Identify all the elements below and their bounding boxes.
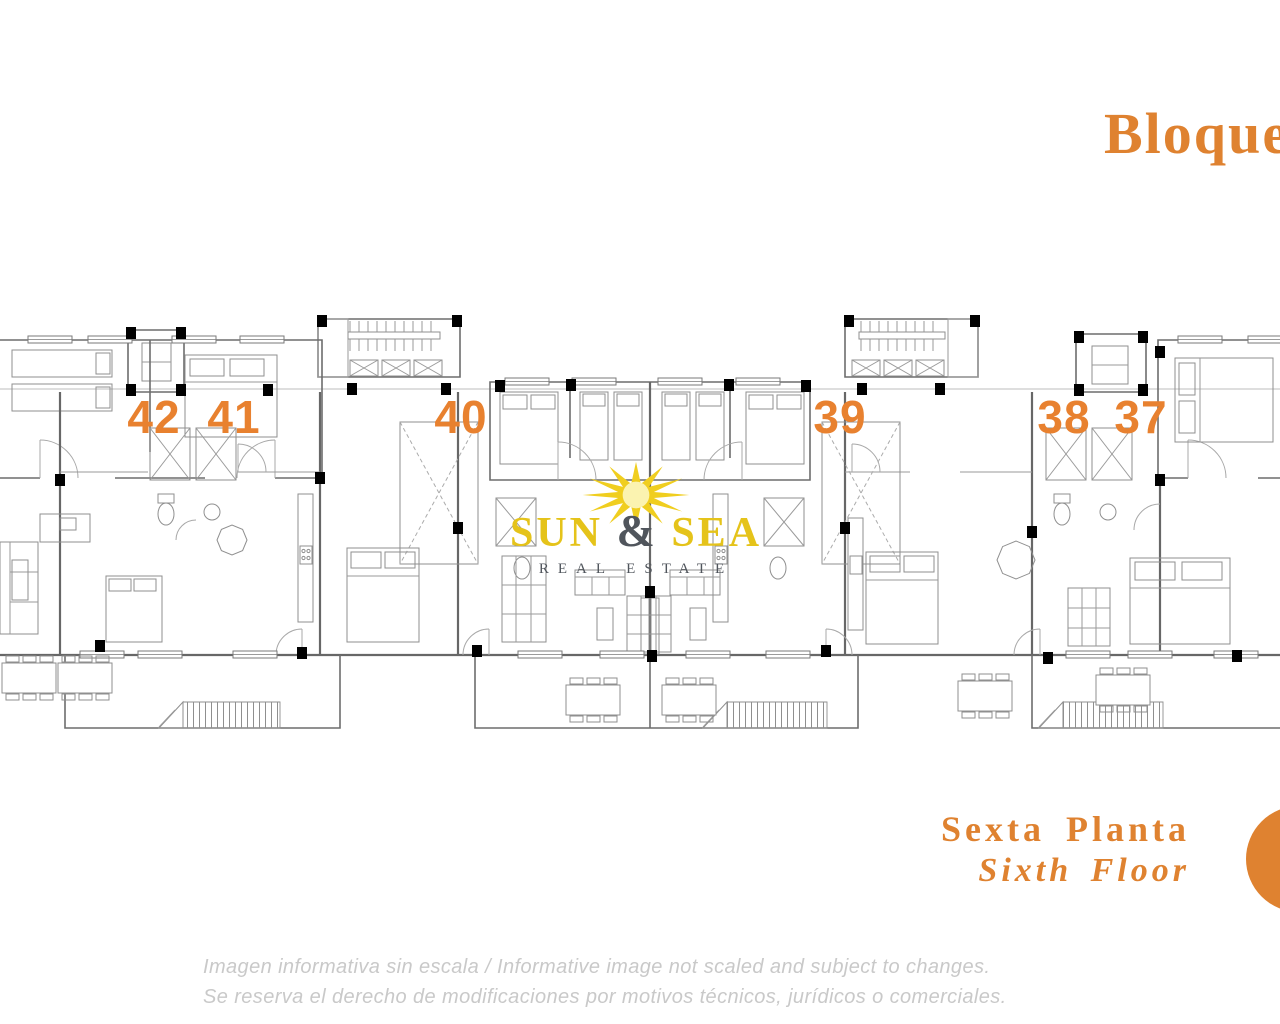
unit-number-40: 40 (434, 394, 487, 440)
unit-number-38: 38 (1037, 394, 1090, 440)
watermark-ampersand: & (617, 505, 658, 556)
disclaimer-line-2: Se reserva el derecho de modificaciones … (203, 982, 1007, 1012)
unit-number-42: 42 (127, 394, 180, 440)
elevator-core-right (1076, 334, 1146, 392)
unit-number-37: 37 (1114, 394, 1167, 440)
floor-label-spanish: Sexta Planta (941, 808, 1190, 851)
stair-core-left (318, 319, 460, 377)
floor-label: Sexta Planta Sixth Floor (941, 808, 1190, 892)
unit-number-41: 41 (207, 394, 260, 440)
watermark-logo: SUN & SEA REAL ESTATE (486, 458, 786, 578)
page: 42 41 40 39 38 37 Bloque SUN & SEA REAL … (0, 0, 1280, 1024)
watermark-word-sun: SUN (510, 510, 603, 556)
watermark-name: SUN & SEA (486, 506, 786, 557)
floor-label-english: Sixth Floor (941, 851, 1190, 892)
unit-number-39: 39 (813, 394, 866, 440)
watermark-word-sea: SEA (671, 510, 762, 556)
balconies (2, 655, 1280, 728)
disclaimer-line-1: Imagen informativa sin escala / Informat… (203, 952, 1007, 982)
disclaimer: Imagen informativa sin escala / Informat… (203, 952, 1007, 1012)
watermark-tagline: REAL ESTATE (486, 561, 786, 578)
stair-core-right (845, 319, 978, 377)
block-title: Bloque (1104, 100, 1280, 167)
